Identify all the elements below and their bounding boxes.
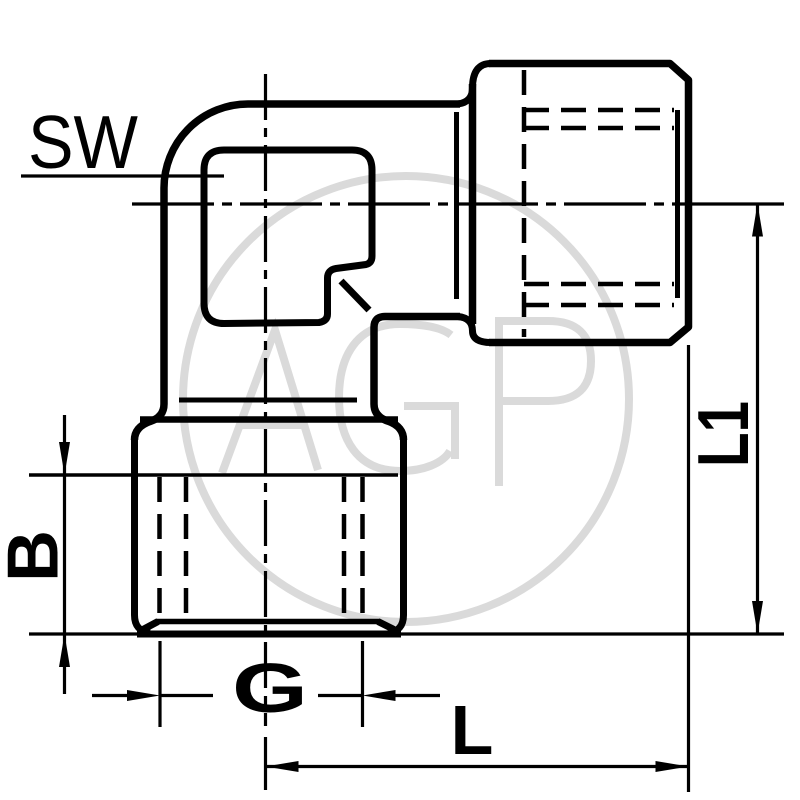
svg-text:SW: SW <box>28 100 138 184</box>
svg-text:L: L <box>451 691 494 769</box>
svg-text:B: B <box>0 530 74 582</box>
svg-text:G: G <box>232 649 308 727</box>
svg-text:L1: L1 <box>684 401 764 467</box>
